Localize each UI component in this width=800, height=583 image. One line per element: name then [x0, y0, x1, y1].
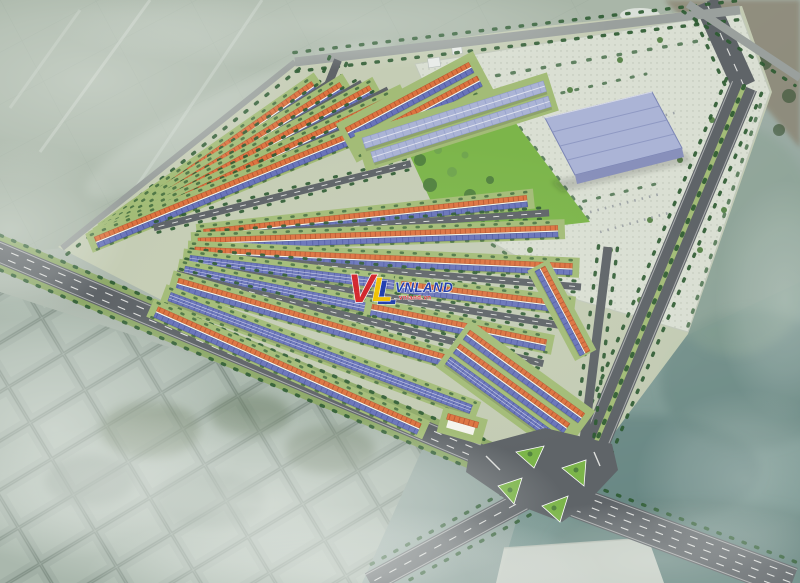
watermark-monogram-l: L	[372, 271, 393, 309]
watermark-brand: VNLAND	[395, 280, 453, 295]
watermark-tagline: vnland.vn	[399, 295, 431, 302]
masterplan-canvas: L L V VNLAND vnland.vn	[0, 0, 800, 583]
aerial-masterplan-render: L L V VNLAND vnland.vn	[0, 0, 800, 583]
watermark-monogram-v: V	[348, 267, 378, 311]
